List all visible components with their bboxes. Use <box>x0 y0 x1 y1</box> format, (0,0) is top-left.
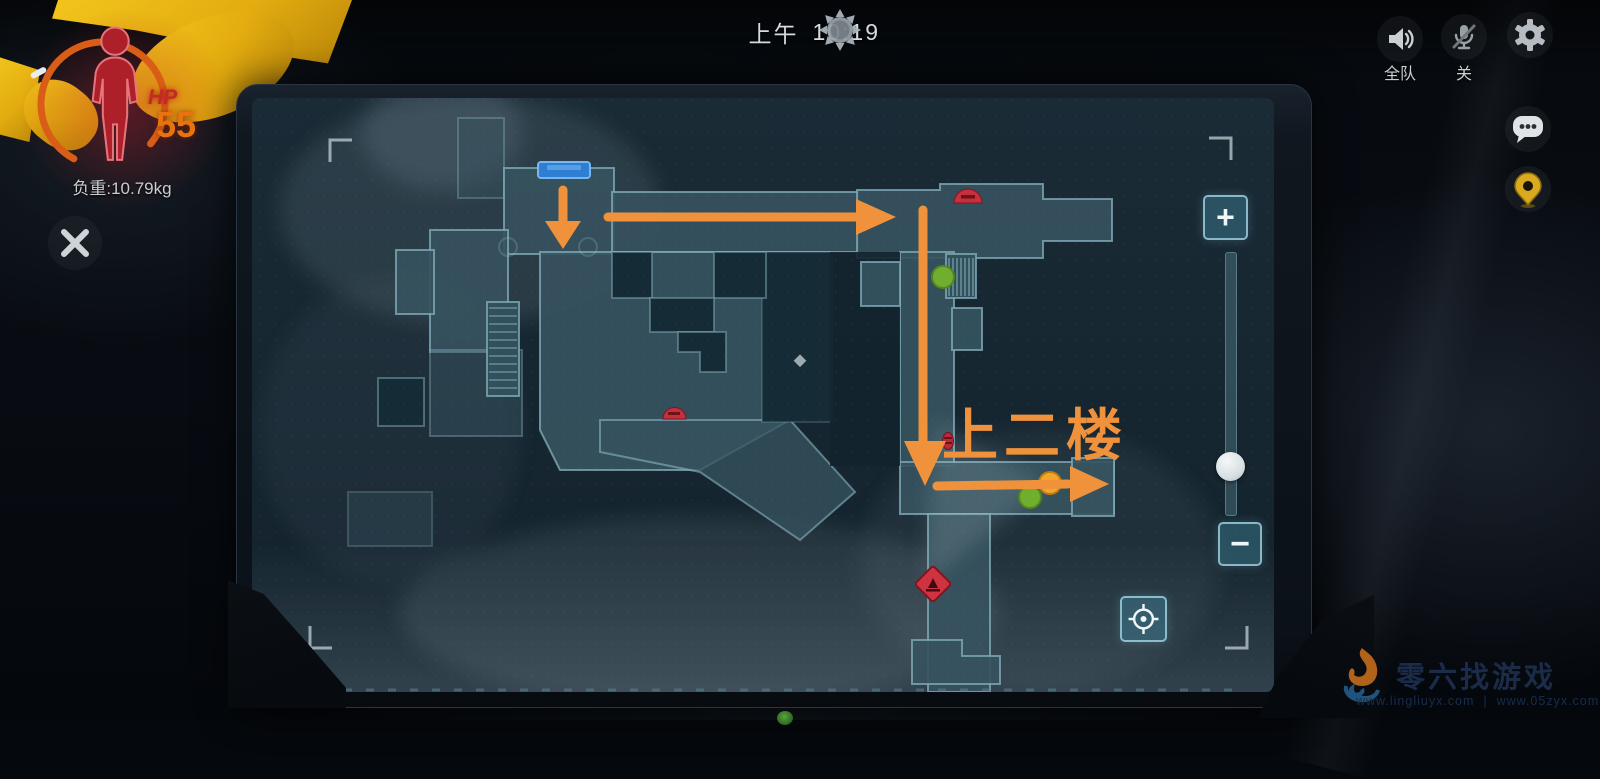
watermark-url-right: www.05zyx.com <box>1497 694 1600 708</box>
teammate-dot <box>932 266 954 288</box>
zoom-in-button[interactable]: + <box>1203 195 1248 240</box>
zoom-out-button[interactable]: − <box>1218 522 1262 566</box>
mic-mute-button[interactable] <box>1441 14 1487 60</box>
mic-muted-icon <box>1449 22 1479 52</box>
route-annotation: 上二楼 <box>942 404 1128 467</box>
mic-mute-label: 关 <box>1434 60 1494 84</box>
team-voice-button[interactable] <box>1377 16 1423 62</box>
gear-icon <box>1513 18 1547 52</box>
hp-value: 55 <box>156 104 196 146</box>
weight-readout: 负重:10.79kg <box>42 174 202 199</box>
location-pin-icon <box>1511 170 1545 208</box>
watermark-urls: www.lingliuyx.com | www.05zyx.com <box>1356 694 1599 708</box>
close-map-button[interactable] <box>48 216 102 270</box>
watermark-url-left: www.lingliuyx.com <box>1356 694 1474 708</box>
watermark: 零六找游戏 www.lingliuyx.com | www.05zyx.com <box>1332 640 1592 718</box>
location-pin-button[interactable] <box>1505 166 1551 212</box>
watermark-site-name: 零六找游戏 <box>1396 654 1556 696</box>
crosshair-icon <box>1122 596 1165 642</box>
teammate-dot <box>1019 486 1041 508</box>
tablet-led <box>777 711 793 725</box>
player-body-icon <box>72 26 158 168</box>
close-icon <box>57 225 93 261</box>
zoom-out-glyph: − <box>1230 525 1250 564</box>
door-marker <box>538 162 590 178</box>
speaker-icon <box>1385 24 1415 54</box>
sun-icon <box>818 8 862 52</box>
zoom-slider-knob[interactable] <box>1216 452 1245 481</box>
team-voice-label: 全队 <box>1370 60 1430 84</box>
recenter-button[interactable] <box>1120 596 1167 642</box>
chat-bubble-icon <box>1510 112 1546 146</box>
settings-button[interactable] <box>1507 12 1553 58</box>
time-period: 上午 <box>748 15 798 49</box>
chat-button[interactable] <box>1505 106 1551 152</box>
zoom-in-glyph: + <box>1216 199 1235 236</box>
